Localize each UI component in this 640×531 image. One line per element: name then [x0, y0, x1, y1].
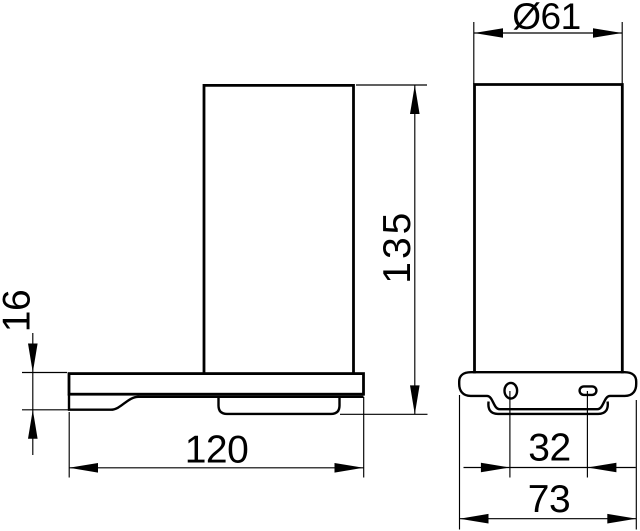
svg-text:135: 135: [376, 210, 419, 284]
svg-text:Ø61: Ø61: [512, 0, 580, 37]
svg-text:120: 120: [185, 429, 249, 472]
svg-text:73: 73: [528, 478, 570, 521]
svg-text:16: 16: [0, 290, 39, 332]
svg-text:32: 32: [528, 427, 570, 470]
